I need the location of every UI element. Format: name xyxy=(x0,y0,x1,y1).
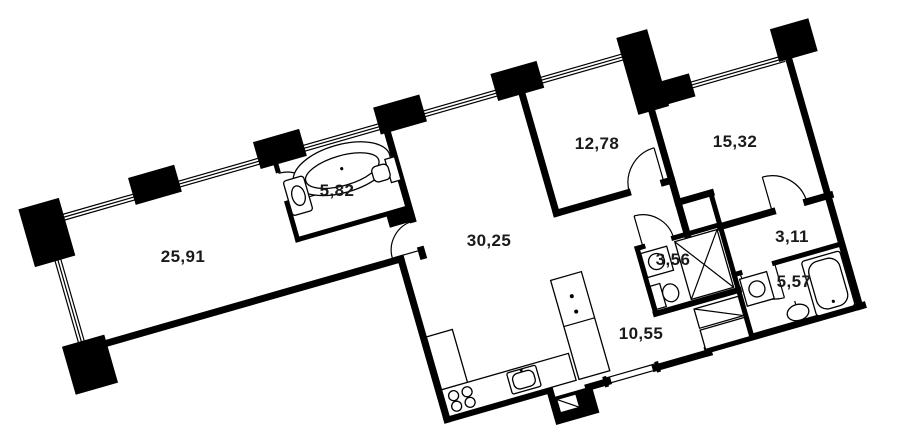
label-entrance-hall: 10,55 xyxy=(619,324,664,343)
label-inner-hall: 3,11 xyxy=(775,227,809,246)
label-bedroom-left: 12,78 xyxy=(575,134,620,153)
label-shower-room: 3,56 xyxy=(656,250,691,269)
floor-plan-page: 25,91 5,82 30,25 12,78 15,32 3,56 3,11 5… xyxy=(0,0,900,438)
label-bathroom-right: 5,57 xyxy=(777,272,812,291)
label-living-room: 25,91 xyxy=(161,247,206,266)
floor-plan-rotated-group xyxy=(18,0,896,438)
pier-top-right xyxy=(770,18,818,62)
label-bathroom-top: 5,82 xyxy=(320,181,355,200)
label-kitchen-living: 30,25 xyxy=(467,231,512,250)
label-bedroom-right: 15,32 xyxy=(713,132,758,151)
floor-plan-svg: 25,91 5,82 30,25 12,78 15,32 3,56 3,11 5… xyxy=(0,0,900,438)
